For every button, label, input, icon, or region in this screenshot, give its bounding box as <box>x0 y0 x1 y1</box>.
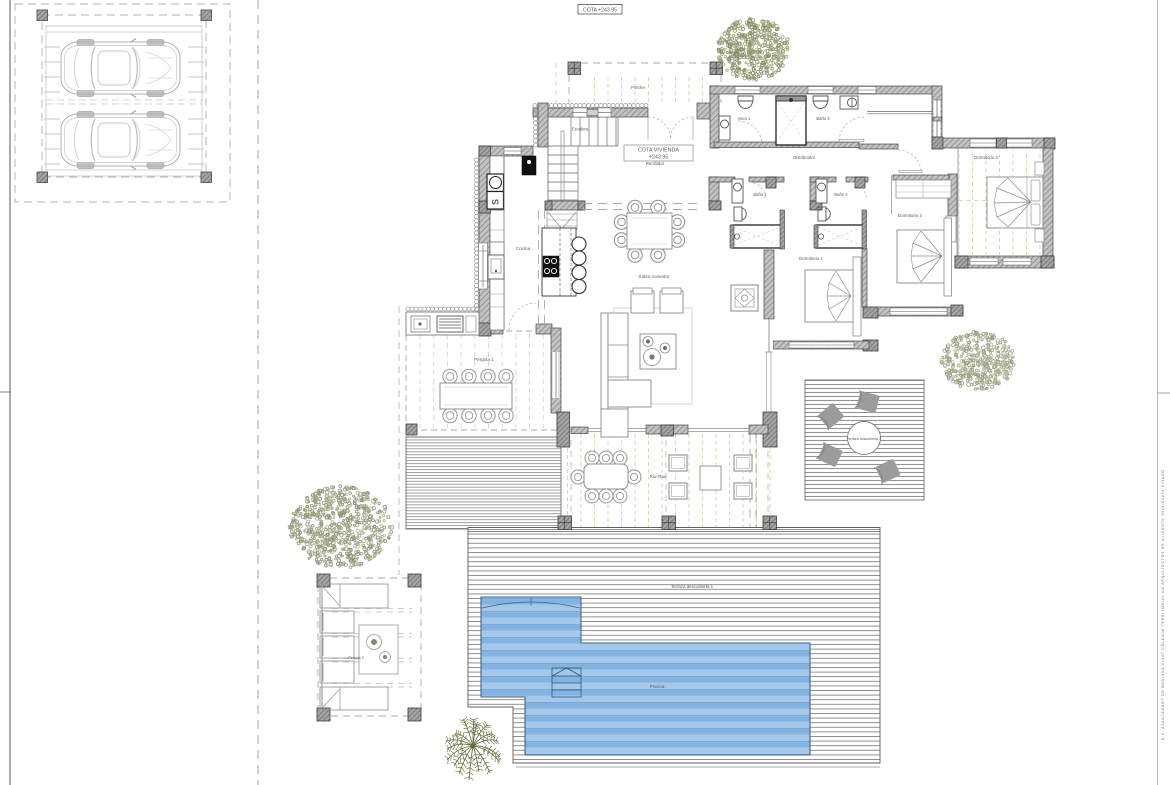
svg-text:COTA +243.95: COTA +243.95 <box>583 8 617 14</box>
svg-text:Recibidor: Recibidor <box>646 161 665 166</box>
svg-text:Pérgola 1: Pérgola 1 <box>474 357 494 362</box>
svg-text:Salón-comedor: Salón-comedor <box>638 274 670 279</box>
svg-text:Dormitorio 3: Dormitorio 3 <box>974 155 998 160</box>
svg-text:S: S <box>491 199 501 205</box>
svg-text:Porche: Porche <box>631 85 645 90</box>
svg-text:Baño 2: Baño 2 <box>834 192 848 197</box>
svg-text:Riu-Rau: Riu-Rau <box>650 474 667 479</box>
svg-text:Dormitorio 1: Dormitorio 1 <box>799 256 823 261</box>
svg-text:Cocina: Cocina <box>516 246 531 251</box>
svg-text:Piscina: Piscina <box>650 684 665 689</box>
svg-text:Aseo 1: Aseo 1 <box>737 116 751 121</box>
svg-text:Terraza descubierta 2: Terraza descubierta 2 <box>847 437 882 441</box>
svg-text:Dormitorio 2: Dormitorio 2 <box>898 213 922 218</box>
svg-text:Pérgola 2: Pérgola 2 <box>348 656 363 660</box>
svg-text:Escalera: Escalera <box>572 127 589 132</box>
svg-text:COTA VIVIENDA: COTA VIVIENDA <box>638 148 679 154</box>
svg-text:Terraza descubierta 1: Terraza descubierta 1 <box>671 584 714 589</box>
svg-text:E.V. AJUNTAMENT DE BENISSA VIS: E.V. AJUNTAMENT DE BENISSA VISAT COLEGIO… <box>1161 469 1165 740</box>
svg-text:Distribuidor: Distribuidor <box>793 155 816 160</box>
svg-text:+243.95: +243.95 <box>649 155 669 161</box>
svg-text:Baño 3: Baño 3 <box>816 116 830 121</box>
svg-text:Baño 1: Baño 1 <box>753 192 767 197</box>
